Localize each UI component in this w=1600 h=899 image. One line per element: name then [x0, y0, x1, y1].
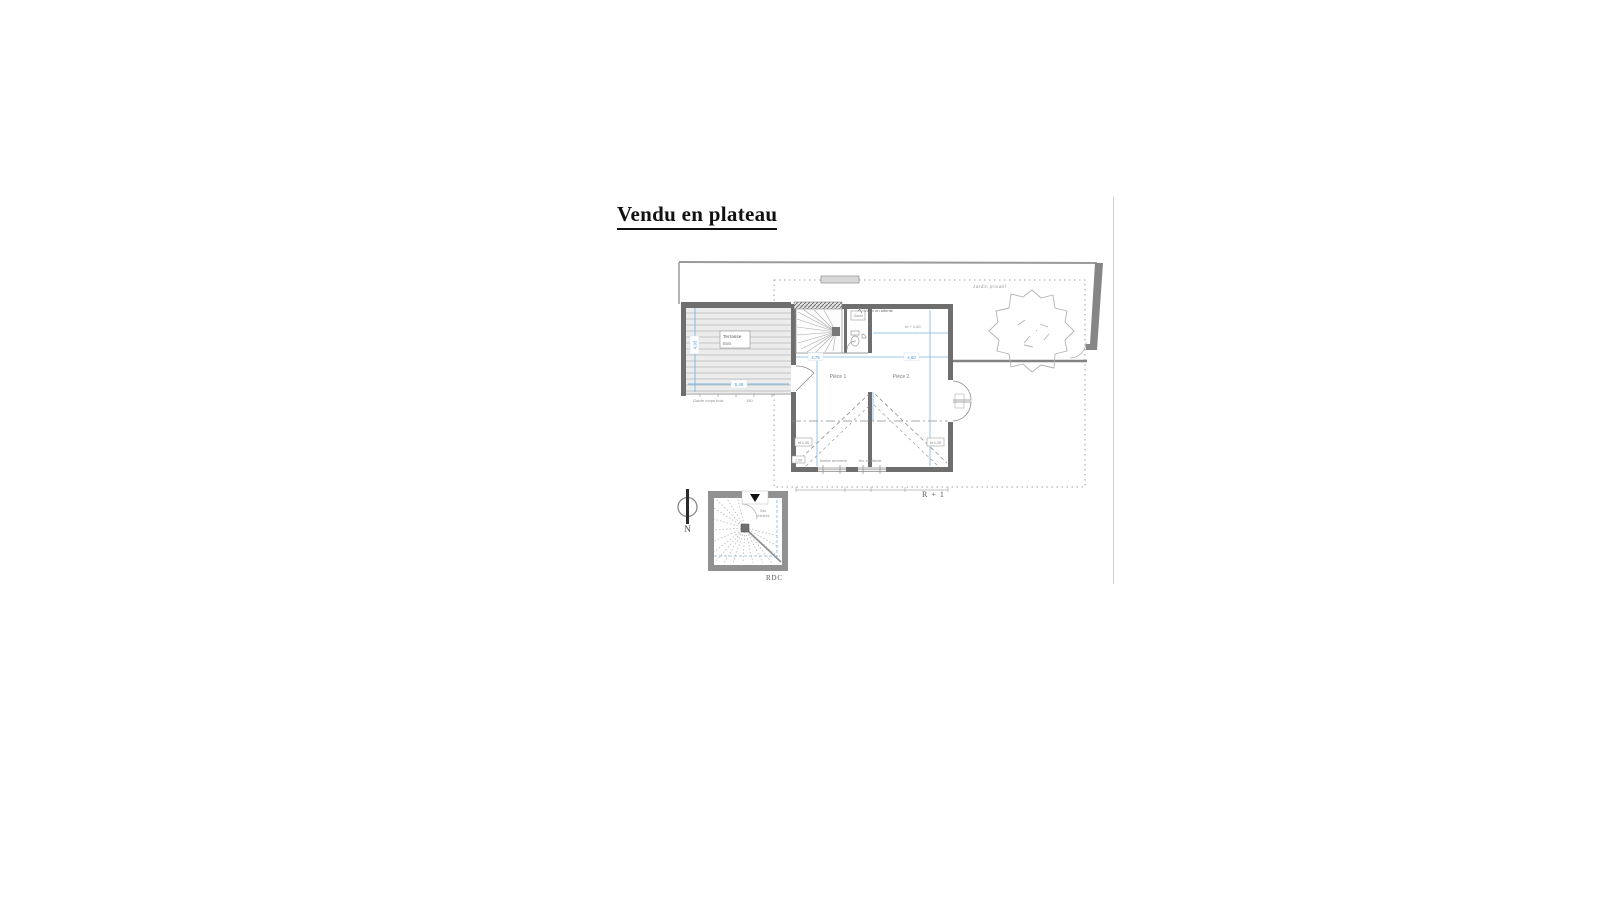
north-arrow: N: [678, 489, 697, 534]
terrace-wall-top: [681, 302, 791, 308]
double-door-bottom-leaf: [953, 402, 971, 421]
rdc-newel-post: [741, 524, 749, 532]
closet: Gaine: [851, 311, 865, 320]
terrace-label: Terrasse Bois: [720, 331, 750, 348]
room1-width-dim: 4,75: [811, 355, 820, 360]
entry-label-line2: d'entrée: [757, 514, 770, 518]
closet-label: Gaine: [854, 314, 864, 318]
compass-needle: [686, 489, 689, 524]
velux-label: Vélux en attente: [864, 308, 894, 313]
site-boundary: [679, 262, 1097, 304]
tree-icon: [989, 290, 1074, 372]
exterior-step: [955, 394, 964, 408]
boundary-wall: [1086, 263, 1103, 350]
room2-label: Pièce 2: [893, 374, 910, 380]
garden-gate-arc: [1070, 342, 1086, 358]
door-width-box: 1,00: [795, 458, 802, 462]
height-box-right: ht 1,20: [930, 441, 942, 445]
stair-upper: [796, 309, 842, 353]
rdc-plan: Sas d'entrée: [708, 491, 788, 582]
entry-label-line1: Sas: [760, 509, 766, 513]
window-right-label: fen. en attente: [859, 459, 881, 463]
garden-label: Jardin privatif: [973, 284, 1007, 289]
terrace: 4,93 5,48 Terrasse Bois Garde corps bois…: [681, 302, 791, 403]
double-door-top-leaf: [953, 381, 971, 400]
window-left-label: fenêtre serrurerie: [820, 459, 847, 463]
height-box-left: ht 1,20: [798, 441, 810, 445]
building-r1: Gaine 4,75 4,60: [791, 302, 971, 474]
floor-plan-drawing: 4,93 5,48 Terrasse Bois Garde corps bois…: [0, 0, 1600, 899]
compass-label: N: [684, 524, 691, 534]
garden: Jardin privatif: [953, 263, 1103, 372]
stair-newel-post: [832, 327, 840, 336]
terrace-height-dim: 4,93: [693, 340, 698, 349]
terrace-width-dim: 5,48: [735, 382, 744, 387]
gate-on-boundary: [821, 276, 859, 283]
guardrail-label: Garde corps bois: [693, 398, 723, 403]
room1-label: Pièce 1: [830, 374, 847, 380]
scanned-floor-plan-page: Vendu en plateau: [0, 0, 1600, 899]
room2-width-dim: 4,60: [907, 355, 916, 360]
terrace-label-line1: Terrasse: [723, 334, 742, 340]
height-line-label: ht + 1,80: [905, 324, 921, 329]
guardrail-dim: 150: [746, 398, 753, 403]
terrace-wall-left: [681, 302, 686, 396]
floor-label-r1: R + 1: [922, 490, 945, 499]
floor-label-rdc: RDC: [766, 574, 783, 582]
terrace-label-line2: Bois: [723, 341, 731, 346]
